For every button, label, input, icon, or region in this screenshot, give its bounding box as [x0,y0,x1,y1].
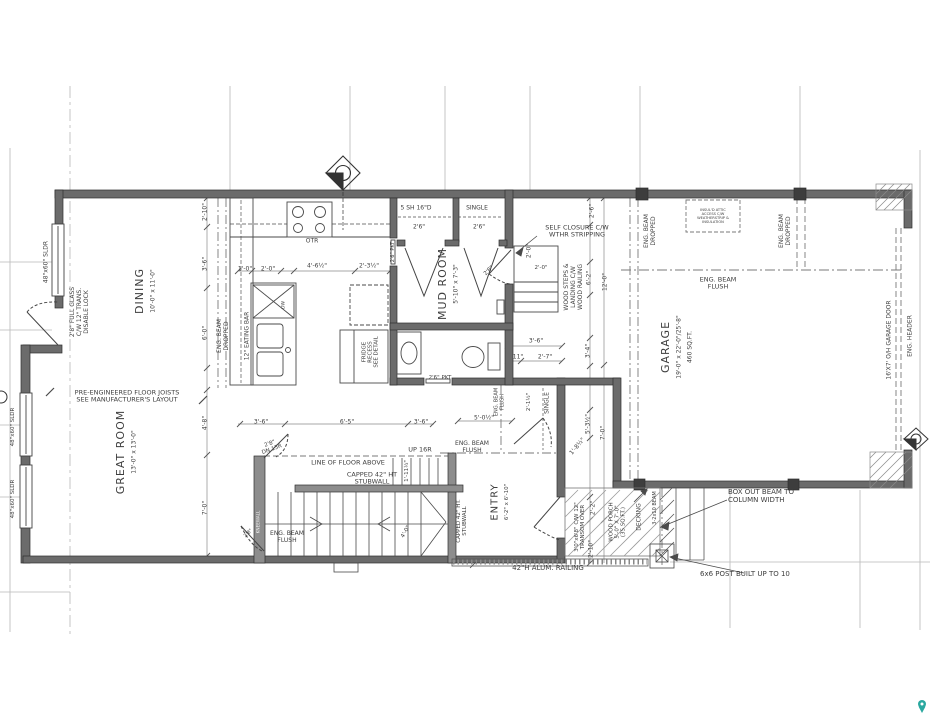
grid-lines [0,86,930,638]
toilet-bowl [462,347,484,368]
kitchen-island [251,283,296,385]
entry-stubwall [448,453,456,563]
bifold-door-2 [464,248,498,296]
stair-dn-door-leaf [264,434,288,458]
stairs [265,458,448,572]
entry-door-leaf [534,497,560,527]
kitchen-sink-bowl-1 [257,324,283,348]
windows [20,224,450,528]
entry-closet-door-leaf [514,418,543,444]
section-marker-icon [0,391,7,403]
garage-elements [514,184,912,488]
doors [27,248,560,551]
bathroom-fixtures [397,300,504,374]
dining-patio-door-leaf [27,312,58,345]
side-marker-icon [904,428,928,450]
pocket-door-kitchen [391,240,395,264]
mudroom-garage-door-leaf [489,250,511,274]
floor-plan-drawing [0,0,931,720]
kitchen-fixtures [230,198,390,385]
wall-niche [497,300,504,314]
bifold-door-1 [405,248,443,296]
fridge [340,330,388,383]
range [287,202,332,237]
toilet-tank [488,343,500,370]
kitchen-sink-bowl-2 [257,352,283,376]
entry-step [334,563,358,572]
floor-plan-canvas: 48"x60" SLDR2'8" FULL GLASSC/W 12" TRANS… [0,0,931,720]
pocket-door-bath [426,379,450,383]
bath-sink [401,342,417,364]
location-pin-icon [918,700,926,713]
attic-access-box [686,200,740,232]
stair-stubwall-cap [295,485,463,492]
exterior-walls [21,188,912,563]
kitchen-counter-left [230,198,253,385]
fridge-recess [350,285,388,325]
kitchen-faucet [286,348,291,353]
